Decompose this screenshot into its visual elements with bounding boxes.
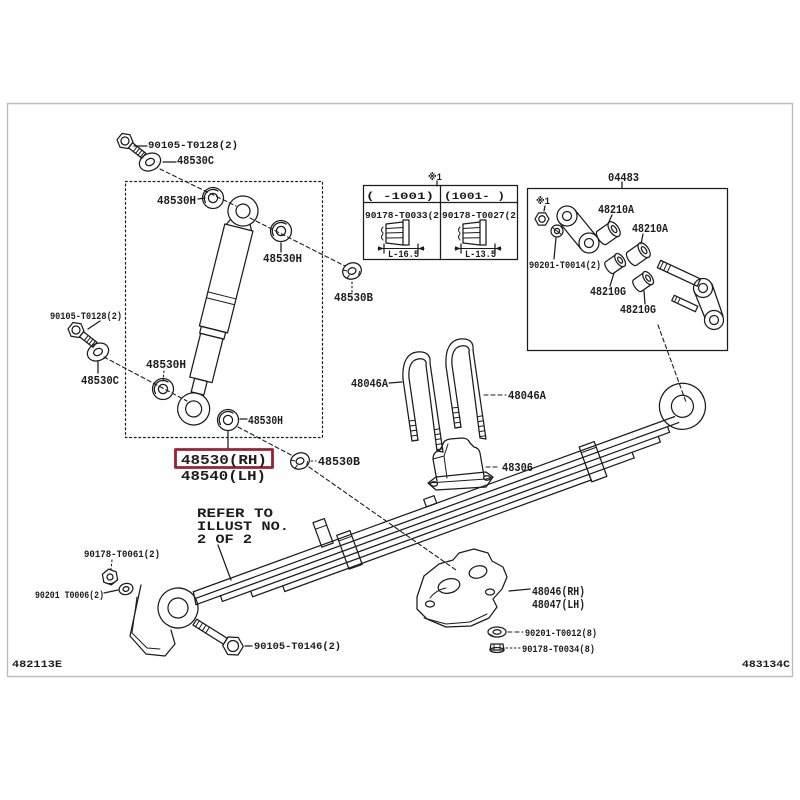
- label-48046a-left[interactable]: 48046A: [351, 378, 388, 391]
- label-48530h-1[interactable]: 48530H: [157, 195, 196, 208]
- label-90178-t0034[interactable]: 90178-T0034(8): [522, 644, 595, 656]
- label-48210a-2[interactable]: 48210A: [632, 223, 668, 236]
- label-48530h-2[interactable]: 48530H: [263, 253, 302, 266]
- label-04483[interactable]: 04483: [608, 172, 639, 185]
- table-length-right: L-13.5: [465, 250, 496, 261]
- label-90105-t0146[interactable]: 90105-T0146(2): [254, 641, 341, 653]
- label-48530b-2[interactable]: 48530B: [318, 456, 360, 469]
- label-48046-rh[interactable]: 48046(RH): [532, 585, 585, 599]
- note-line-3: 2 OF 2: [197, 532, 252, 547]
- ref-mark-box: ※1: [536, 195, 550, 208]
- plate-code-right: 483134C: [742, 659, 791, 671]
- table-header-left: ( -1001): [366, 191, 434, 203]
- label-48046a-right[interactable]: 48046A: [508, 390, 546, 403]
- label-48530c-left[interactable]: 48530C: [81, 375, 119, 388]
- label-90201-t0006[interactable]: 90201 T0006(2): [35, 590, 104, 602]
- label-90178-t0061[interactable]: 90178-T0061(2): [84, 549, 160, 561]
- label-48530b-1[interactable]: 48530B: [334, 292, 373, 305]
- page-background: [0, 0, 800, 800]
- ref-mark-table: ※1: [428, 171, 442, 184]
- label-48210g-1[interactable]: 48210G: [590, 286, 626, 299]
- label-90201-t0014[interactable]: 90201-T0014(2): [529, 260, 601, 272]
- label-90105-t0128-left[interactable]: 90105-T0128(2): [50, 311, 122, 323]
- label-48530c-top[interactable]: 48530C: [177, 155, 214, 168]
- plate-code-left: 482113E: [12, 659, 62, 671]
- label-48210a-1[interactable]: 48210A: [598, 204, 634, 217]
- parts-diagram-page: 90105-T0128(2)48530C48530H48530H48530B90…: [0, 0, 800, 800]
- table-part-right[interactable]: 90178-T0027(2: [442, 210, 516, 221]
- label-48306[interactable]: 48306: [502, 462, 533, 475]
- table-header-right: (1001- ): [444, 191, 505, 203]
- label-48210g-2[interactable]: 48210G: [620, 304, 656, 317]
- table-part-left[interactable]: 90178-T0033(2: [365, 210, 439, 221]
- label-48530h-3[interactable]: 48530H: [146, 359, 186, 372]
- table-length-left: L-16.5: [388, 250, 419, 261]
- label-48047-lh[interactable]: 48047(LH): [532, 598, 585, 612]
- label-48530h-4[interactable]: 48530H: [248, 415, 283, 428]
- diagram-canvas: 90105-T0128(2)48530C48530H48530H48530B90…: [0, 0, 800, 800]
- label-48540-lh[interactable]: 48540(LH): [181, 469, 266, 485]
- label-48530-rh[interactable]: 48530(RH): [181, 453, 267, 469]
- label-90201-t0012[interactable]: 90201-T0012(8): [525, 628, 597, 640]
- label-90105-t0128-top[interactable]: 90105-T0128(2): [148, 140, 238, 152]
